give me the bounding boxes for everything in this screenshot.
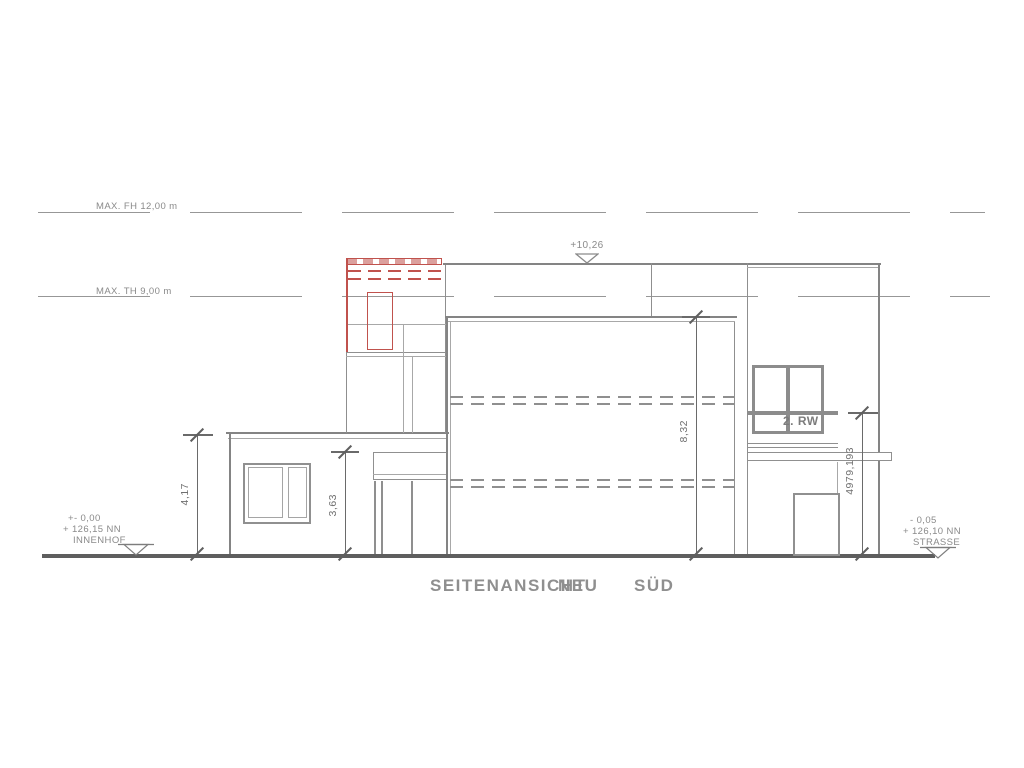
new-parapet-bar	[346, 258, 442, 265]
entry-mullion-1	[374, 481, 376, 554]
main-floor-dash-2b	[450, 486, 734, 488]
strasse-level-line1: - 0,05	[910, 515, 937, 526]
new-parapet-dash-1	[348, 270, 443, 272]
tower-band-bottom	[346, 356, 447, 357]
strasse-level-triangle-icon	[919, 546, 957, 559]
roof-level-triangle-icon	[575, 253, 599, 264]
max-fh-label: MAX. FH 12,00 m	[96, 201, 178, 212]
tower-band-top	[346, 352, 447, 353]
main-left-edge-inner	[450, 322, 451, 554]
strasse-level-line2: + 126,10 NN	[903, 526, 961, 537]
tower-floor-line	[348, 324, 447, 325]
drawing-title-part2: NEU	[558, 576, 598, 596]
innenhof-level-line1: +- 0,00	[68, 513, 101, 524]
dim-363-line	[345, 452, 346, 554]
elevation-drawing: MAX. FH 12,00 m MAX. TH 9,00 m 2. RW	[0, 0, 1024, 768]
right-building-cap-line	[747, 267, 878, 268]
left-window-pane-left	[248, 467, 283, 518]
main-floor-dash-2a	[450, 479, 734, 481]
new-wall-edge	[346, 258, 348, 352]
upper-storey-right-edge	[651, 263, 652, 318]
left-window-pane-right	[288, 467, 307, 518]
new-window-outline	[367, 292, 393, 350]
dim-417-label: 4,17	[179, 483, 191, 505]
main-floor-dash-1b	[450, 403, 734, 405]
innenhof-level-line2: + 126,15 NN	[63, 524, 121, 535]
new-parapet-dash-2	[348, 278, 443, 280]
rw-label: 2. RW	[783, 414, 819, 428]
max-th-line	[38, 296, 990, 297]
balcony-line-1	[747, 443, 838, 444]
left-building-roof-bottom	[228, 438, 447, 439]
right-building-right-edge	[878, 263, 880, 554]
entry-canopy	[373, 452, 447, 480]
left-building-roof-top	[226, 432, 449, 434]
right-building-left-edge	[747, 263, 748, 554]
balcony-line-2	[747, 447, 838, 448]
entry-mullion-2	[381, 481, 383, 554]
dim-417-line	[197, 435, 198, 554]
dim-832-line	[696, 317, 697, 554]
drawing-title-part3: SÜD	[634, 576, 674, 596]
entry-mullion-3	[411, 481, 413, 554]
canopy-slab	[747, 452, 892, 461]
roof-level-label: +10,26	[563, 240, 611, 251]
main-right-edge	[734, 322, 735, 554]
dim-4979-label: 4979,193	[844, 447, 856, 495]
main-floor-dash-1a	[450, 396, 734, 398]
dim-4979-line	[862, 413, 863, 554]
tower-division-1	[403, 324, 404, 433]
right-building-door	[793, 493, 840, 556]
innenhof-level-triangle-icon	[117, 543, 155, 556]
tower-division-2	[412, 356, 413, 433]
roof-line	[443, 263, 881, 265]
main-left-edge	[446, 316, 448, 554]
dim-832-label: 8,32	[678, 420, 690, 442]
max-fh-line	[38, 212, 985, 213]
entry-canopy-inner-line	[373, 474, 446, 475]
dim-363-label: 3,63	[327, 494, 339, 516]
left-building-wall	[229, 434, 231, 554]
max-th-label: MAX. TH 9,00 m	[96, 286, 172, 297]
